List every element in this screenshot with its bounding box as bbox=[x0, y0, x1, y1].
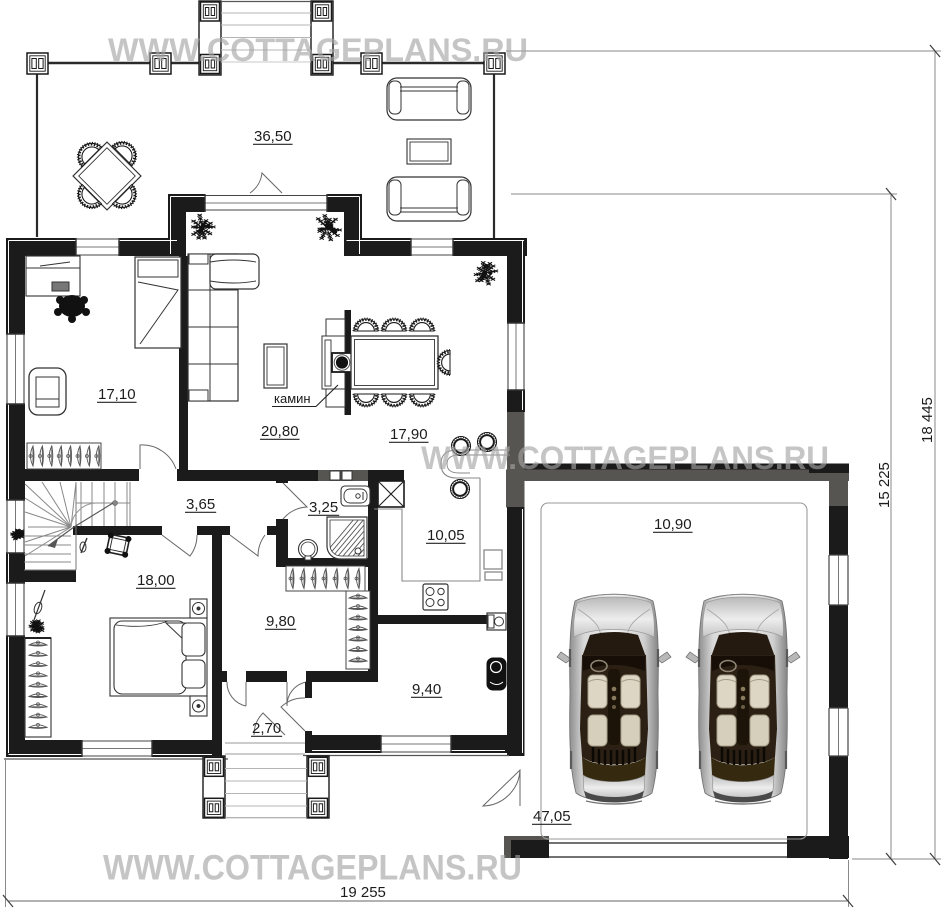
svg-text:20,80: 20,80 bbox=[261, 423, 299, 440]
svg-text:18 445: 18 445 bbox=[919, 397, 936, 443]
svg-text:17,10: 17,10 bbox=[98, 386, 136, 403]
svg-text:WWW.COTTAGEPLANS.RU: WWW.COTTAGEPLANS.RU bbox=[421, 440, 829, 476]
svg-text:3,25: 3,25 bbox=[309, 499, 338, 516]
svg-text:2,70: 2,70 bbox=[252, 720, 281, 737]
svg-text:36,50: 36,50 bbox=[254, 128, 292, 145]
svg-text:10,90: 10,90 bbox=[654, 516, 692, 533]
svg-text:9,40: 9,40 bbox=[412, 681, 441, 698]
svg-text:15 225: 15 225 bbox=[876, 462, 893, 508]
svg-text:9,80: 9,80 bbox=[266, 613, 295, 630]
svg-text:WWW.COTTAGEPLANS.RU: WWW.COTTAGEPLANS.RU bbox=[108, 32, 528, 68]
svg-text:10,05: 10,05 bbox=[427, 527, 465, 544]
svg-text:3,65: 3,65 bbox=[186, 496, 215, 513]
svg-text:WWW.COTTAGEPLANS.RU: WWW.COTTAGEPLANS.RU bbox=[103, 849, 522, 888]
svg-text:47,05: 47,05 bbox=[533, 808, 571, 825]
svg-text:камин: камин bbox=[274, 391, 311, 406]
svg-text:18,00: 18,00 bbox=[137, 572, 175, 589]
